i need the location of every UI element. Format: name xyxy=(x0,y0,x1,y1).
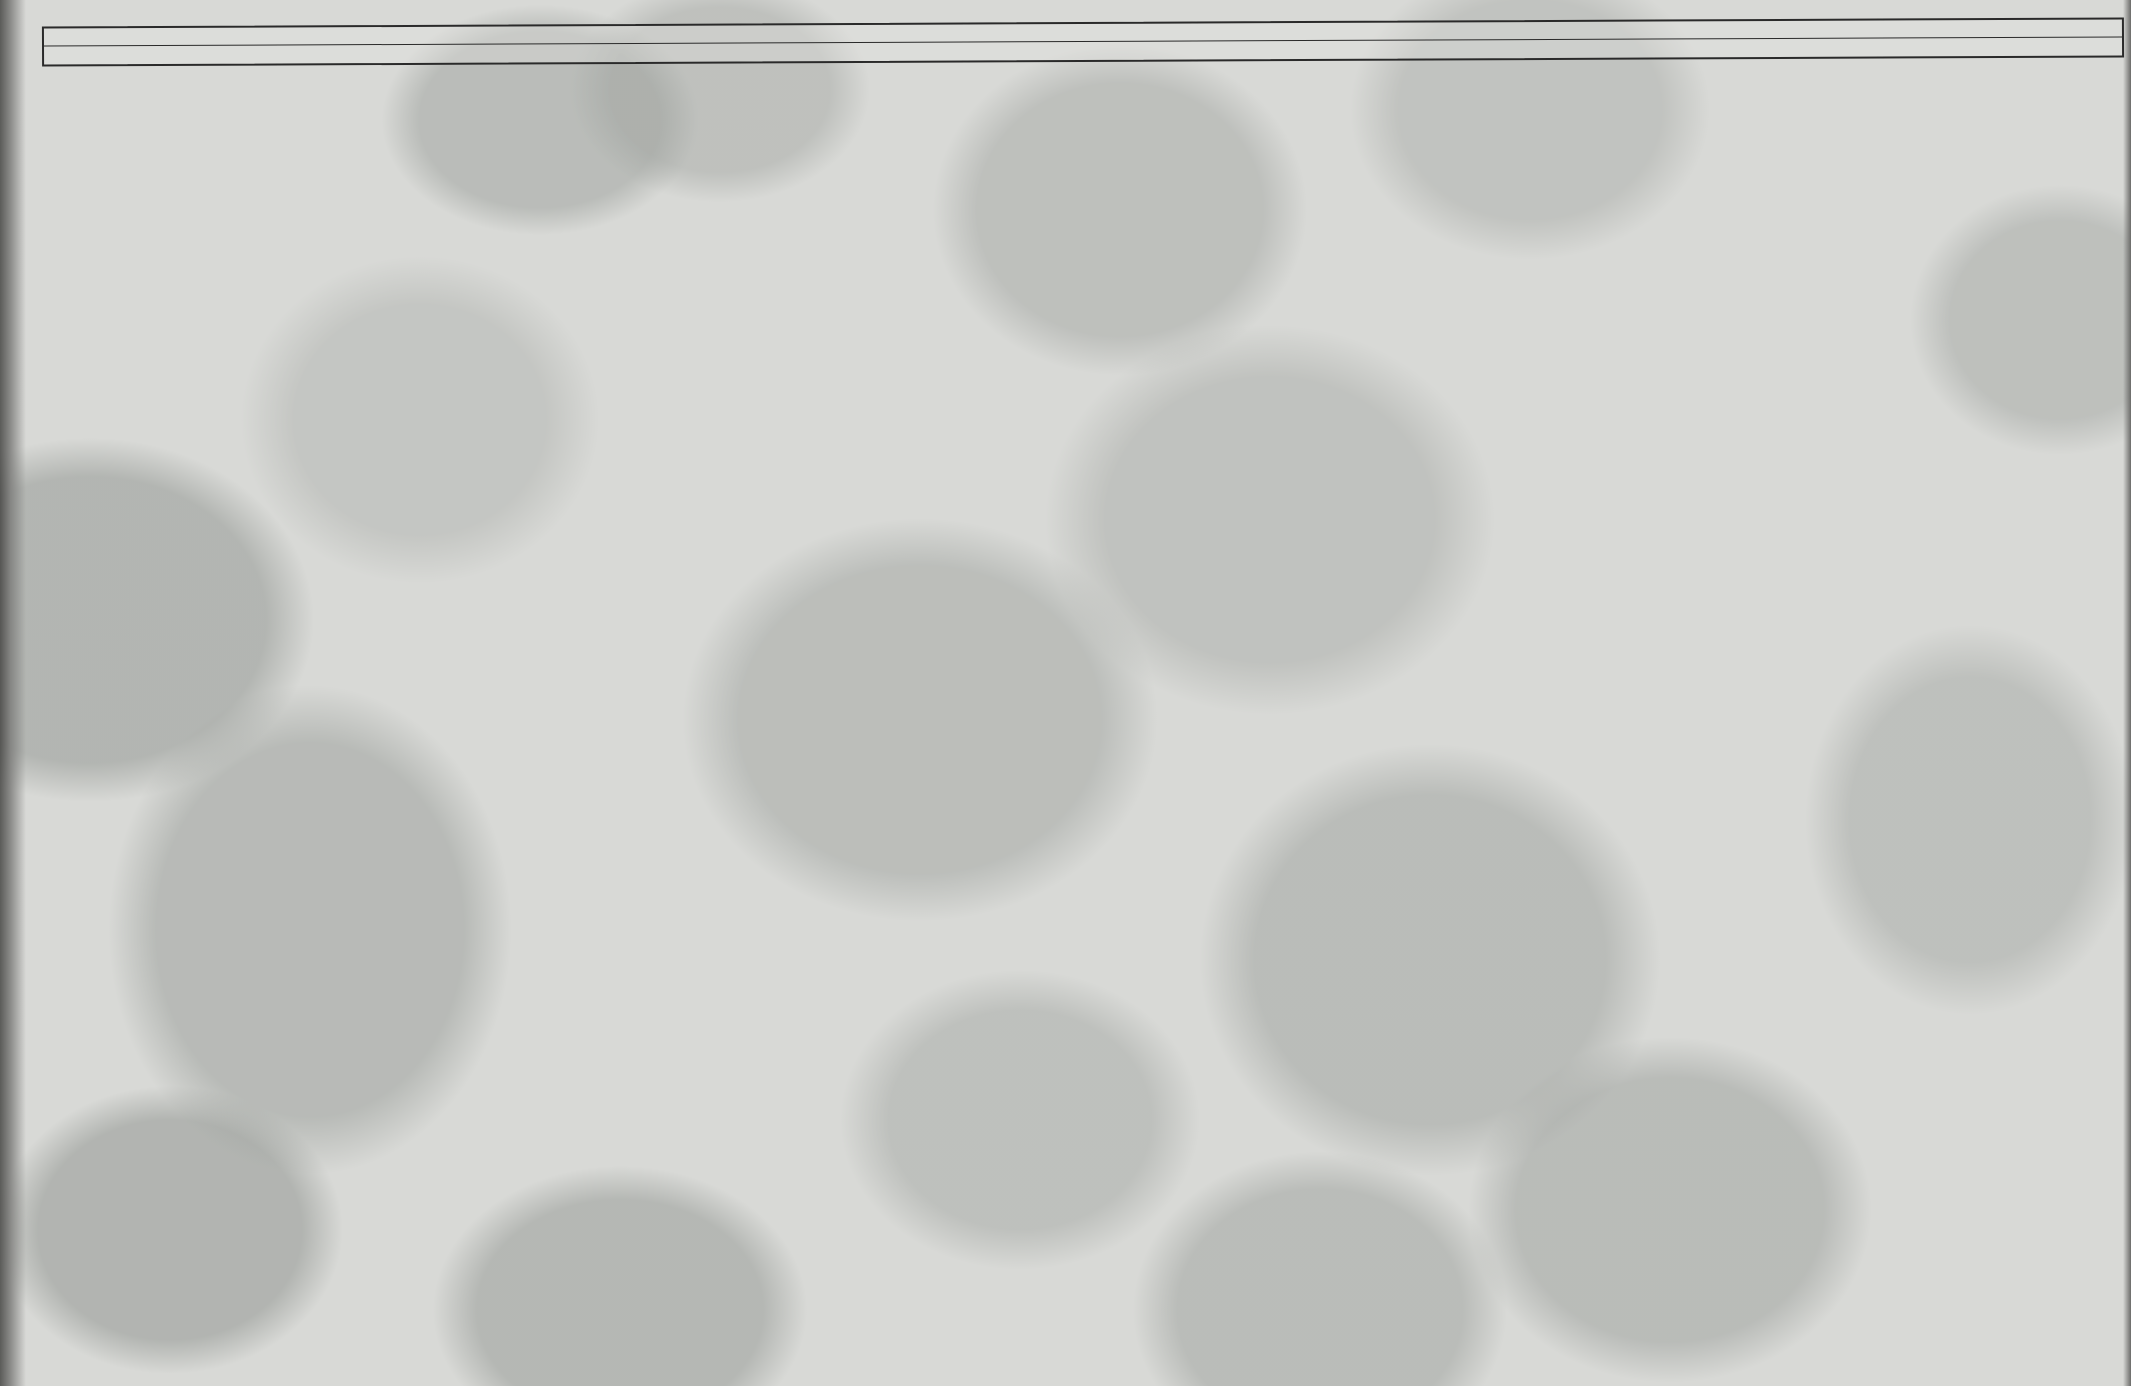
schematic-scan-page xyxy=(0,0,2131,1386)
schematic-wire-layer xyxy=(0,0,2131,1386)
ruler-divider xyxy=(44,36,2122,46)
